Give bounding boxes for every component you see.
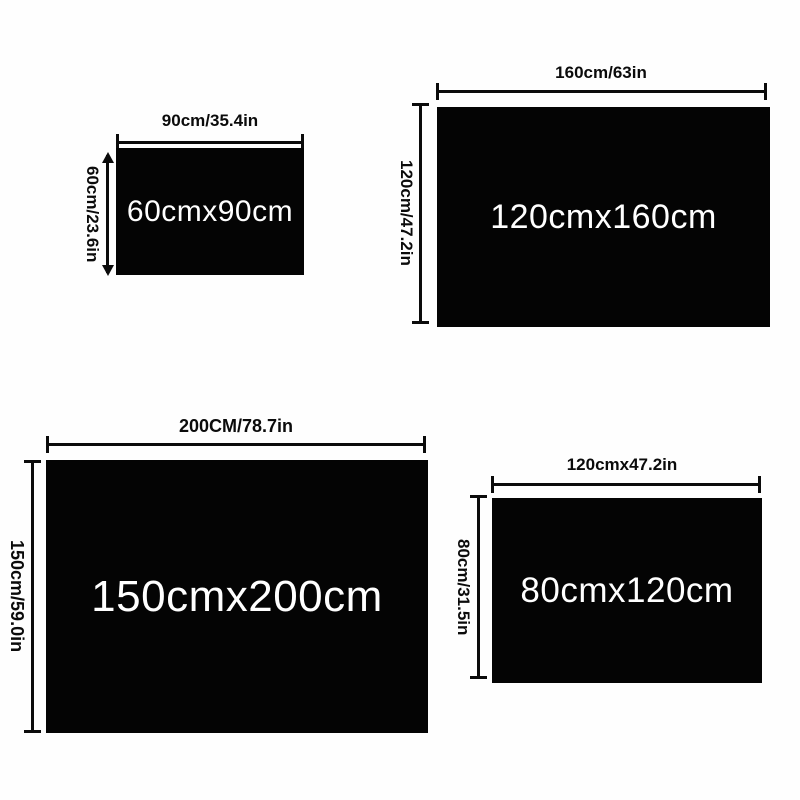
width-dimension-arrow — [492, 483, 760, 486]
width-dimension-arrow — [117, 141, 303, 144]
size-rectangle: 120cmx160cm — [437, 107, 770, 327]
size-rectangle: 60cmx90cm — [116, 148, 304, 275]
width-dimension-arrow — [437, 90, 766, 93]
height-dimension-label: 120cm/47.2in — [396, 100, 416, 325]
size-rectangle-label: 80cmx120cm — [520, 571, 733, 611]
width-dimension-arrow — [47, 443, 425, 446]
width-dimension-label: 120cmx47.2in — [522, 455, 722, 475]
width-dimension-label: 90cm/35.4in — [110, 111, 310, 131]
height-dimension-arrow — [106, 155, 109, 273]
height-dimension-label: 80cm/31.5in — [452, 496, 474, 678]
size-rectangle-label: 150cmx200cm — [91, 572, 383, 622]
height-dimension-arrow — [31, 461, 34, 732]
width-dimension-label: 160cm/63in — [501, 63, 701, 83]
size-rectangle: 150cmx200cm — [46, 460, 428, 733]
height-dimension-label: 60cm/23.6in — [82, 150, 102, 278]
height-dimension-arrow — [419, 104, 422, 323]
height-dimension-label: 150cm/59.0in — [6, 461, 28, 732]
size-chart-diagram: 90cm/35.4in 60cm/23.6in 60cmx90cm 160cm/… — [0, 0, 800, 800]
size-rectangle-label: 60cmx90cm — [127, 195, 293, 229]
width-dimension-label: 200CM/78.7in — [136, 416, 336, 437]
height-dimension-arrow — [477, 496, 480, 678]
size-rectangle: 80cmx120cm — [492, 498, 762, 683]
size-rectangle-label: 120cmx160cm — [490, 198, 717, 237]
